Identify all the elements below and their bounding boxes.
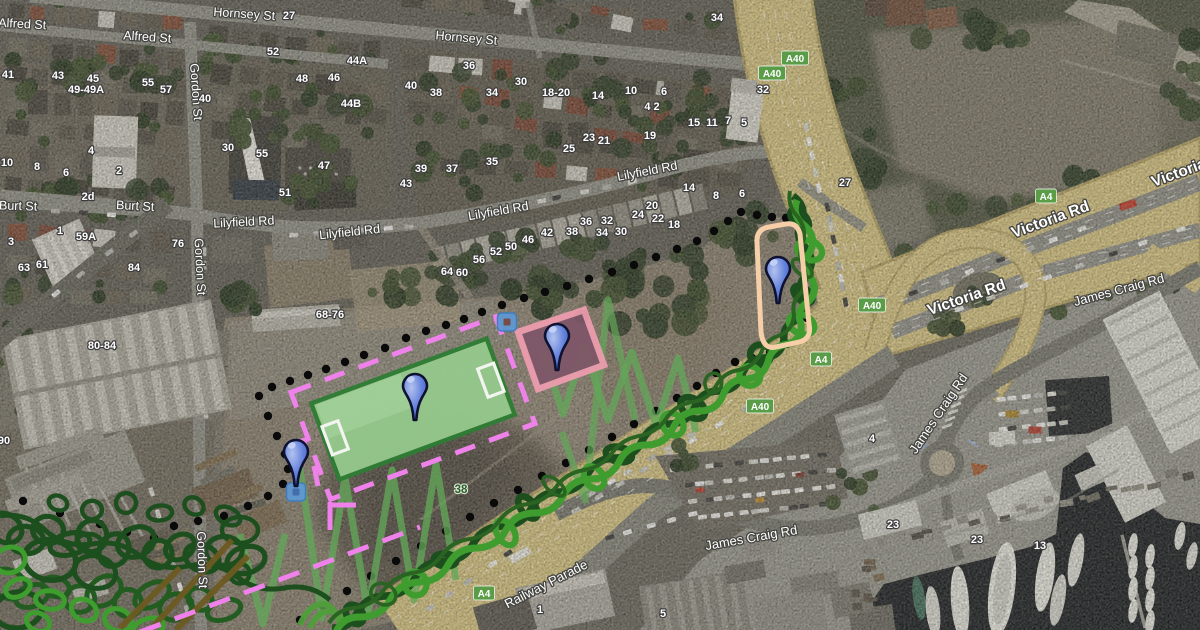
svg-text:30: 30 xyxy=(615,226,627,238)
svg-text:50: 50 xyxy=(505,241,517,253)
svg-text:4: 4 xyxy=(869,433,876,445)
svg-text:A4: A4 xyxy=(815,355,828,366)
svg-text:34: 34 xyxy=(711,12,724,24)
svg-text:A40: A40 xyxy=(763,69,782,80)
svg-text:4: 4 xyxy=(88,145,95,157)
svg-text:60: 60 xyxy=(456,267,468,279)
svg-text:24: 24 xyxy=(632,209,645,221)
svg-text:Burt St: Burt St xyxy=(0,198,38,213)
svg-text:52: 52 xyxy=(490,246,502,258)
svg-text:63: 63 xyxy=(18,262,30,274)
svg-text:6: 6 xyxy=(63,167,69,179)
svg-text:15: 15 xyxy=(688,117,700,129)
svg-text:11: 11 xyxy=(706,117,718,129)
svg-text:46: 46 xyxy=(328,72,340,84)
svg-text:36: 36 xyxy=(463,60,475,72)
svg-text:18-20: 18-20 xyxy=(542,87,570,99)
svg-text:38: 38 xyxy=(566,226,578,238)
svg-text:10: 10 xyxy=(625,85,637,97)
svg-text:20: 20 xyxy=(646,200,658,212)
svg-text:6: 6 xyxy=(739,188,745,200)
svg-text:4 2: 4 2 xyxy=(644,101,659,113)
svg-text:36: 36 xyxy=(580,216,592,228)
svg-text:2: 2 xyxy=(116,165,122,177)
svg-text:8: 8 xyxy=(34,161,40,173)
svg-text:41: 41 xyxy=(2,69,14,81)
svg-text:6: 6 xyxy=(661,86,667,98)
svg-text:23: 23 xyxy=(887,519,899,531)
svg-text:61: 61 xyxy=(36,259,48,271)
svg-text:38: 38 xyxy=(455,484,468,496)
svg-text:55: 55 xyxy=(142,77,154,89)
svg-text:84: 84 xyxy=(128,262,141,274)
svg-text:51: 51 xyxy=(279,187,291,199)
svg-text:80-84: 80-84 xyxy=(88,340,117,352)
svg-text:43: 43 xyxy=(52,70,64,82)
svg-text:14: 14 xyxy=(592,90,605,102)
svg-text:44A: 44A xyxy=(347,55,367,67)
svg-text:30: 30 xyxy=(515,76,527,88)
svg-text:37: 37 xyxy=(446,163,458,175)
svg-text:A40: A40 xyxy=(863,301,882,312)
svg-text:35: 35 xyxy=(486,156,498,168)
svg-text:43: 43 xyxy=(400,178,412,190)
svg-text:52: 52 xyxy=(267,46,279,58)
svg-text:68-76: 68-76 xyxy=(316,309,344,321)
svg-text:23: 23 xyxy=(583,132,595,144)
svg-text:21: 21 xyxy=(598,135,610,147)
svg-text:48: 48 xyxy=(296,73,308,85)
svg-text:40: 40 xyxy=(405,80,417,92)
svg-text:3: 3 xyxy=(8,236,14,248)
svg-text:32: 32 xyxy=(601,215,613,227)
svg-text:55: 55 xyxy=(256,148,268,160)
svg-text:46: 46 xyxy=(522,234,534,246)
svg-text:1: 1 xyxy=(57,225,63,237)
svg-text:76: 76 xyxy=(172,238,184,250)
svg-text:13: 13 xyxy=(1034,540,1046,552)
svg-text:22: 22 xyxy=(652,213,664,225)
svg-text:56: 56 xyxy=(473,254,485,266)
svg-text:19: 19 xyxy=(644,130,656,142)
svg-text:44B: 44B xyxy=(341,98,361,110)
svg-text:47: 47 xyxy=(318,160,330,172)
svg-text:34: 34 xyxy=(596,227,609,239)
svg-text:14: 14 xyxy=(683,182,696,194)
svg-text:38: 38 xyxy=(430,87,442,99)
svg-text:Alfred St: Alfred St xyxy=(0,16,47,33)
svg-text:A40: A40 xyxy=(786,54,805,65)
svg-text:90: 90 xyxy=(0,435,10,447)
svg-text:A4: A4 xyxy=(1040,192,1053,203)
svg-text:2d: 2d xyxy=(82,191,95,203)
svg-text:7: 7 xyxy=(725,115,731,127)
svg-text:8: 8 xyxy=(713,190,719,202)
svg-text:A4: A4 xyxy=(478,589,491,600)
svg-text:5: 5 xyxy=(660,608,666,620)
svg-text:57: 57 xyxy=(160,84,172,96)
svg-text:1: 1 xyxy=(537,604,543,616)
svg-text:49-49A: 49-49A xyxy=(68,84,104,96)
svg-text:A40: A40 xyxy=(751,402,770,413)
svg-text:32: 32 xyxy=(757,84,769,96)
svg-text:39: 39 xyxy=(415,163,427,175)
svg-text:27: 27 xyxy=(839,177,851,189)
svg-text:34: 34 xyxy=(486,87,499,99)
svg-text:Burt St: Burt St xyxy=(116,198,155,214)
svg-text:27: 27 xyxy=(283,10,295,22)
svg-text:23: 23 xyxy=(971,534,983,546)
svg-text:5: 5 xyxy=(741,117,747,129)
svg-text:Gordon St: Gordon St xyxy=(194,531,210,589)
svg-text:40: 40 xyxy=(199,93,211,105)
svg-text:18: 18 xyxy=(668,219,680,231)
svg-text:64: 64 xyxy=(441,266,454,278)
svg-text:10: 10 xyxy=(1,157,13,169)
svg-text:59A: 59A xyxy=(76,231,96,243)
svg-text:42: 42 xyxy=(541,227,553,239)
svg-text:25: 25 xyxy=(563,143,575,155)
svg-text:30: 30 xyxy=(222,142,234,154)
